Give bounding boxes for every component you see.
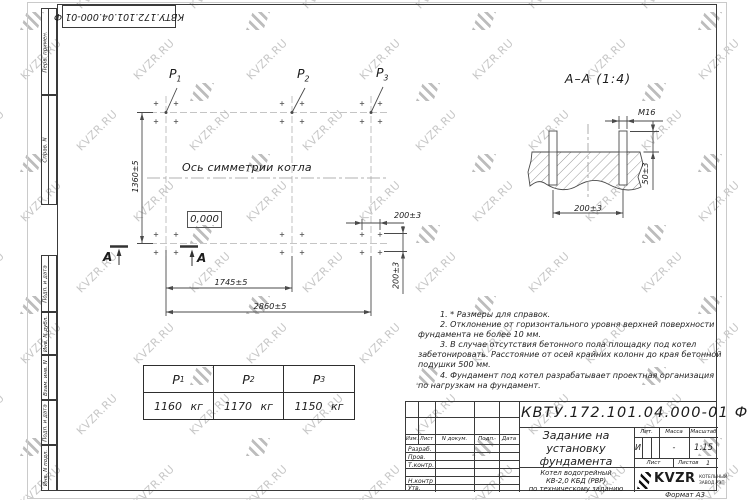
note-line: подушки 500 мм.	[418, 360, 724, 370]
note-line: фундамента не более 10 мм.	[418, 330, 724, 340]
dim-thread-m16: М16	[638, 107, 655, 117]
title-block-line	[673, 458, 674, 467]
tb-row-razrab: Разраб.	[408, 446, 432, 453]
section-cut-marks	[110, 247, 198, 267]
load-table-header-p3: P3	[284, 366, 354, 393]
tb-scale-value: 1:15	[689, 443, 718, 453]
tb-lit-value: И	[634, 443, 642, 452]
note-line: 3. В случае отсутствия бетонного пола пл…	[418, 340, 724, 350]
tb-product-name: Котел водогрейный КВ-2,0 КБД (РВР) по те…	[520, 469, 632, 494]
load-table-value-p1: 1160 кг	[144, 393, 214, 419]
dim-width-2860: 2860±5	[247, 301, 293, 311]
tb-col-ndokum: N докум.	[435, 436, 474, 442]
drawing-sheet: KVZR.RUKVZR.RUKVZR.RUKVZR.RUKVZR.RUKVZR.…	[0, 0, 750, 500]
load-table-header-p1: P1	[144, 366, 214, 393]
section-letter-right: А	[197, 251, 206, 265]
kvzr-logo-text: KVZR	[654, 471, 696, 486]
plan-dimension-arrows	[140, 111, 405, 314]
tb-row-nkontr: Н.контр	[408, 478, 433, 485]
title-block-line	[406, 417, 519, 418]
format-note: Формат А3	[650, 491, 720, 499]
anchor-bolt-left	[549, 131, 557, 185]
note-line: 4. Фундамент под котел разрабатывает про…	[418, 371, 724, 381]
dim-protrusion-50: 50±3	[641, 158, 650, 189]
dim-section-spacing-200: 200±3	[571, 203, 605, 213]
title-block-line	[642, 437, 643, 458]
tb-doc-title: Задание на установку фундамента	[520, 429, 632, 468]
title-block-line	[435, 402, 436, 492]
load-point-label-p3: P3	[376, 65, 388, 83]
title-block-line	[634, 437, 718, 438]
dim-inner-width-1745: 1745±5	[208, 277, 254, 287]
section-letter-left: А	[103, 250, 112, 264]
tb-scale-label: Масштаб	[689, 429, 718, 435]
dim-bolt-spacing-x: 200±3	[394, 211, 421, 220]
title-block-line	[499, 402, 500, 492]
dim-bolt-spacing-y: 200±3	[392, 255, 401, 297]
load-point-label-p2: P2	[297, 66, 309, 84]
load-table-header-p2: P2	[214, 366, 284, 393]
tb-sheets-label: Листов	[678, 460, 699, 466]
note-line: по нагрузкам на фундамент.	[418, 381, 724, 391]
load-point-label-p1: P1	[169, 66, 181, 84]
dim-height-1360: 1360±5	[131, 154, 140, 199]
symmetry-axis-label: Ось симметрии котла	[182, 161, 312, 174]
load-table-value-p3: 1150 кг	[284, 393, 354, 419]
anchor-bolt-right	[619, 131, 627, 185]
kvzr-logo-sub2: ЗАВОД РЭП	[699, 481, 725, 486]
note-line: 1. * Размеры для справок.	[418, 310, 724, 320]
tb-row-tkontr: Т.контр.	[408, 462, 434, 469]
tb-mass-value: -	[659, 443, 689, 452]
kvzr-logo-sub1: КОТЕЛЬНЫЙ	[699, 475, 727, 480]
tb-mass-label: Масса	[659, 429, 689, 435]
load-table-value-p2: 1170 кг	[214, 393, 284, 419]
note-line: забетонировать. Расстояние от осей крайн…	[418, 350, 724, 360]
kvzr-logo-icon	[637, 472, 652, 489]
technical-notes: 1. * Размеры для справок. 2. Отклонение …	[414, 310, 724, 391]
title-block-line	[651, 437, 652, 458]
tb-col-podp: Подп.	[474, 436, 499, 442]
load-table: P1 P2 P3 1160 кг 1170 кг 1150 кг	[143, 365, 355, 420]
elevation-mark: 0,000	[187, 211, 222, 228]
section-view-title: А–А (1:4)	[560, 71, 636, 86]
tb-sheets-value: 1	[706, 459, 710, 467]
tb-col-list: Лист	[418, 436, 435, 442]
tb-row-prov: Пров.	[408, 454, 425, 461]
title-block: Изм. Лист N докум. Подп. Дата Разраб. Пр…	[405, 401, 717, 491]
tb-row-utv: Утв.	[408, 485, 421, 492]
tb-sheet-label: Лист	[634, 460, 673, 466]
note-line: 2. Отклонение от горизонтального уровня …	[418, 320, 724, 330]
tb-col-data: Дата	[499, 436, 519, 442]
tb-lit-label: Лит.	[634, 429, 659, 435]
tb-designation: КВТУ.172.101.04.000-01 Ф	[521, 405, 716, 421]
title-block-line	[474, 402, 475, 492]
tb-col-izm: Изм.	[406, 436, 418, 442]
